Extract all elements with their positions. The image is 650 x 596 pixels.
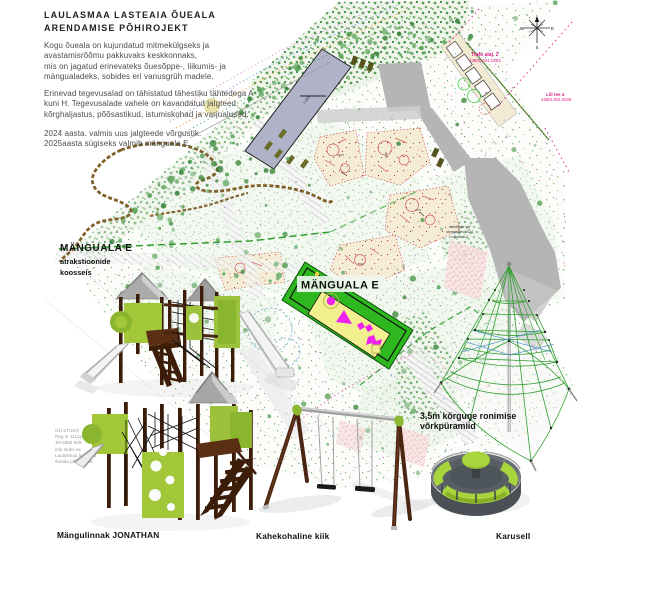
svg-text:MÄNGUALA E: MÄNGUALA E bbox=[301, 279, 379, 292]
svg-text:S: S bbox=[536, 45, 539, 50]
svg-text:asfaltkate tee: asfaltkate tee bbox=[449, 225, 470, 229]
svg-text:olemasolev 2024: olemasolev 2024 bbox=[446, 230, 473, 234]
svg-text:43801:001:0209: 43801:001:0209 bbox=[541, 97, 572, 102]
svg-text:43801:001:0153: 43801:001:0153 bbox=[469, 58, 501, 63]
svg-text:E: E bbox=[551, 26, 554, 31]
svg-text:sillutis kl.2: sillutis kl.2 bbox=[452, 235, 468, 239]
